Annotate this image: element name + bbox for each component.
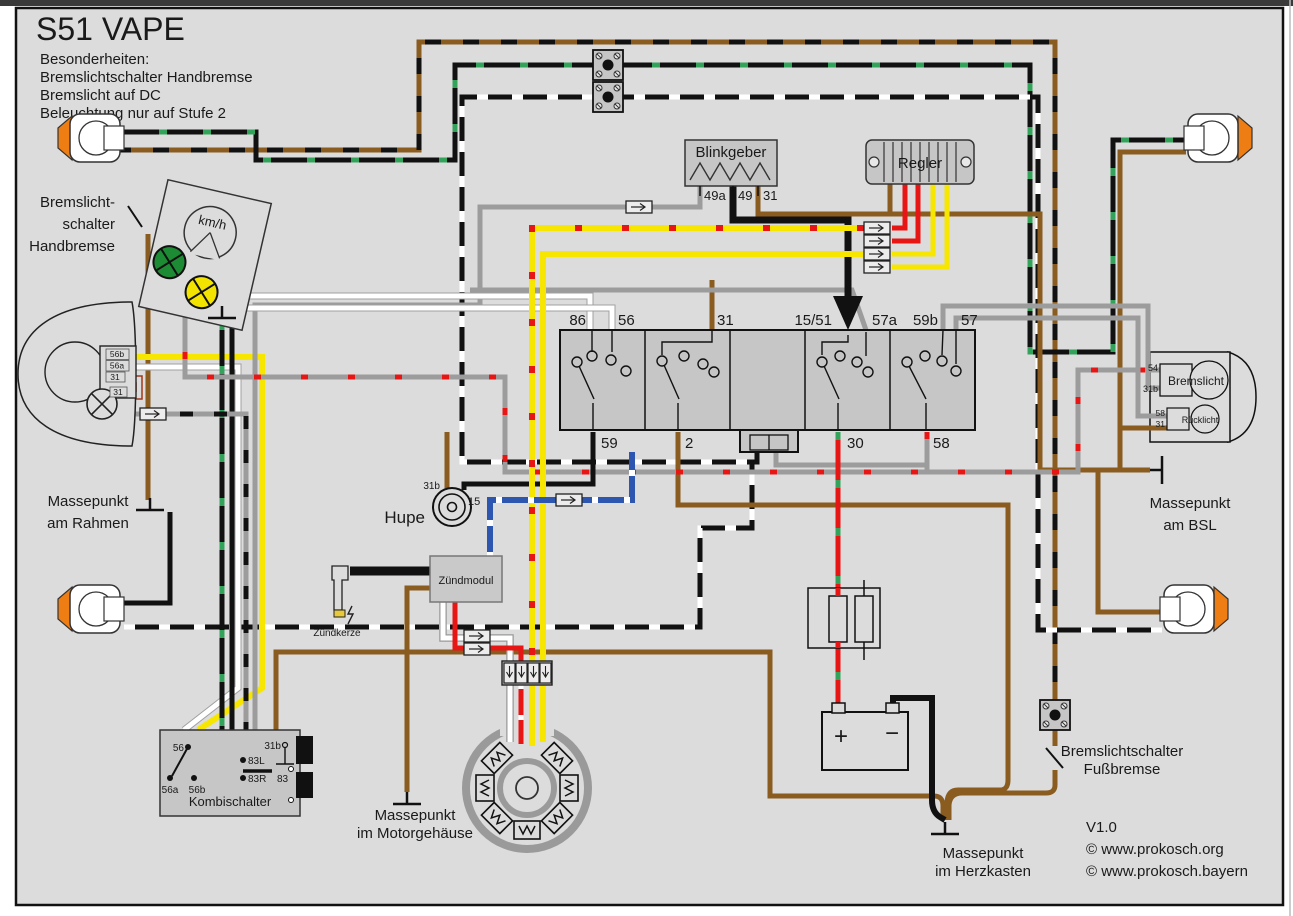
ground-frame-label: am Rahmen <box>47 515 129 532</box>
copyright-line: © www.prokosch.org <box>1086 841 1224 858</box>
mount-hole-icon <box>961 157 971 167</box>
footbrake-switch-unit <box>1040 700 1070 730</box>
tail-light-terminal: 58 <box>1156 408 1166 418</box>
note-line: Bremslichtschalter Handbremse <box>40 69 253 86</box>
combi-switch-label: Kombischalter <box>189 794 272 809</box>
flasher-label: Blinkgeber <box>696 144 767 161</box>
combi-terminal: 56a <box>162 785 179 796</box>
combi-connector-block <box>296 736 313 764</box>
block-terminal: 58 <box>933 435 950 452</box>
inline-connector <box>464 643 490 655</box>
handbrake-label: schalter <box>62 216 115 233</box>
combi-terminal: 83R <box>248 774 266 785</box>
horn-label: Hupe <box>384 508 425 527</box>
combi-terminal: 83L <box>248 756 265 767</box>
brake-light-label: Bremslicht <box>1168 374 1225 388</box>
page-title: S51 VAPE <box>36 11 185 47</box>
voltage-regulator: Regler <box>866 140 974 184</box>
headlight-terminal: 31 <box>110 372 120 382</box>
generator-connector <box>502 661 552 685</box>
inline-connector <box>464 630 490 642</box>
block-terminal: 57a <box>872 312 898 329</box>
flasher-terminal: 49 <box>738 188 752 203</box>
battery: + − <box>822 703 908 770</box>
turn-signal-rear-right <box>1160 585 1228 633</box>
wiring-diagram-page: S51 VAPE Besonderheiten: Bremslichtschal… <box>0 0 1293 916</box>
block-terminal: 2 <box>685 435 693 452</box>
fuse-icon <box>829 596 847 642</box>
headlight-terminal: 31 <box>113 387 123 397</box>
turn-signal-front-left <box>58 114 124 162</box>
inline-connector <box>556 494 582 506</box>
horn-terminal: 31b <box>423 481 440 492</box>
ignition-module: Zündmodul <box>430 556 502 602</box>
ground-bsl-label: am BSL <box>1163 517 1216 534</box>
combi-terminal: 83 <box>277 774 289 785</box>
block-terminal: 86 <box>569 312 586 329</box>
version-label: V1.0 <box>1086 819 1117 836</box>
fuse-icon <box>855 596 873 642</box>
note-line: Besonderheiten: <box>40 51 149 68</box>
combi-switch: 56 56a 56b 83L 83R 83 31b Kombischalter <box>160 730 313 816</box>
tail-light-terminal: 31 <box>1156 419 1166 429</box>
brake-light-terminal: 31b <box>1143 384 1158 394</box>
regulator-connector-stack <box>864 222 890 273</box>
copyright-line: © www.prokosch.bayern <box>1086 863 1248 880</box>
brake-light-terminal: 54 <box>1148 363 1158 373</box>
ignition-light-switch-block: 86 56 31 15/51 57a 59b 57 59 2 30 58 <box>560 312 978 452</box>
handlebar-switch-unit <box>593 82 623 112</box>
ground-engine-label: Massepunkt <box>375 807 457 824</box>
battery-plus-label: + <box>834 723 848 750</box>
headlight-terminal: 56b <box>110 349 124 359</box>
ground-engine-label: im Motorgehäuse <box>357 825 473 842</box>
combi-terminal: 56 <box>173 743 185 754</box>
footbrake-label: Fußbremse <box>1084 761 1161 778</box>
flasher-terminal: 49a <box>704 188 726 203</box>
footbrake-label: Bremslichtschalter <box>1061 743 1184 760</box>
fuse-holder <box>808 580 880 660</box>
headlight-terminal: 56a <box>110 361 124 371</box>
ground-frame-label: Massepunkt <box>48 493 130 510</box>
turn-signal-front-right <box>1184 114 1252 162</box>
inline-connector <box>626 201 652 213</box>
block-terminal: 59 <box>601 435 618 452</box>
handbrake-label: Bremslicht- <box>40 194 115 211</box>
flasher-terminal: 31 <box>763 188 777 203</box>
block-terminal: 56 <box>618 312 635 329</box>
battery-minus-label: − <box>885 720 899 747</box>
ground-heart-label: im Herzkasten <box>935 863 1031 880</box>
spark-plug-label: Zündkerze <box>313 628 361 639</box>
block-terminal: 31 <box>717 312 734 329</box>
handlebar-switch-unit <box>593 50 623 80</box>
s51-vape-schematic: S51 VAPE Besonderheiten: Bremslichtschal… <box>0 0 1293 916</box>
block-terminal: 57 <box>961 312 978 329</box>
combi-terminal: 31b <box>264 741 281 752</box>
tail-light-label: Rücklicht <box>1182 415 1219 425</box>
note-line: Bremslicht auf DC <box>40 87 161 104</box>
turn-signal-rear-left <box>58 585 124 633</box>
regulator-label: Regler <box>898 155 942 172</box>
ground-bsl-label: Massepunkt <box>1150 495 1232 512</box>
ignition-module-label: Zündmodul <box>438 575 493 587</box>
top-edge-bar <box>0 0 1293 6</box>
combi-connector-block <box>296 772 313 798</box>
block-terminal: 15/51 <box>794 312 832 329</box>
inline-connector <box>140 408 166 420</box>
block-terminal: 59b <box>913 312 938 329</box>
mount-hole-icon <box>869 157 879 167</box>
block-terminal: 30 <box>847 435 864 452</box>
horn-terminal: 15 <box>468 496 480 508</box>
handbrake-label: Handbremse <box>29 238 115 255</box>
ground-heart-label: Massepunkt <box>943 845 1025 862</box>
